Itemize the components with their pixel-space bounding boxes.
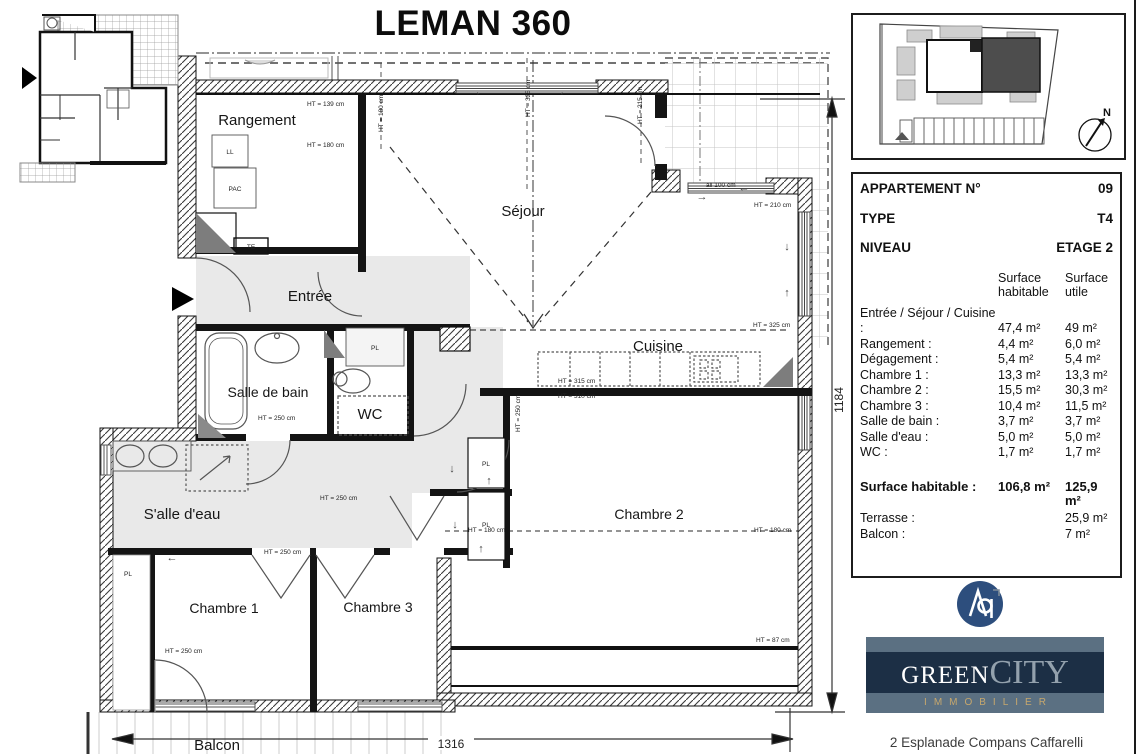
logo-tagline: IMMOBILIER	[866, 693, 1104, 713]
fixture-label: PL	[482, 461, 490, 468]
arrow-glyph: ↓	[784, 241, 790, 253]
surface-total-row: Surface habitable : 106,8 m² 125,9 m²	[860, 480, 1113, 509]
type-row: TYPE T4	[860, 212, 1113, 227]
greencity-logo: GREENCITY IMMOBILIER	[866, 637, 1104, 713]
balcony-floor	[88, 712, 455, 754]
type-label: TYPE	[860, 212, 895, 227]
fixture-label: PL	[482, 522, 490, 529]
compass-north-label: N	[1103, 107, 1111, 119]
level-value: ETAGE 2	[1056, 241, 1113, 256]
logo-green-text: GREEN	[901, 655, 989, 696]
entrance-arrow-icon	[172, 287, 194, 311]
arrow-glyph: →	[697, 191, 708, 203]
apartment-info-panel: APPARTEMENT N° 09 TYPE T4 NIVEAU ETAGE 2…	[851, 172, 1122, 578]
arrow-glyph: →	[471, 86, 482, 98]
plan-sheet: Rangement Séjour Entrée Cuisine Salle de…	[0, 0, 1139, 754]
dim-label: HT = 310 cm	[558, 393, 595, 400]
dim-label: HT = 325 cm	[525, 80, 532, 117]
company-address: 2 Esplanade Compans Caffarelli	[845, 735, 1128, 750]
terrasse-row: Terrasse : 25,9 m²	[860, 511, 1113, 526]
arrow-glyph: ←	[167, 552, 178, 564]
arrow-glyph: ↑	[784, 287, 790, 299]
surface-utile-header: Surface utile	[1065, 271, 1113, 300]
fixture-label: TE	[247, 244, 256, 251]
table-row: Entrée / Séjour / Cuisine : 47,4 m² 49 m…	[860, 306, 1113, 337]
dim-label: HT = 180 cm	[754, 527, 791, 534]
dim-label: HT = 250 cm	[165, 648, 202, 655]
table-row: Chambre 2 : 15,5 m² 30,3 m²	[860, 383, 1113, 399]
highlighted-building	[982, 38, 1040, 92]
logo-city-text: CITY	[990, 652, 1069, 693]
ap-monogram-icon	[956, 580, 1004, 628]
fixture-label: LL	[226, 149, 234, 156]
compass: N	[1079, 107, 1111, 151]
table-row: WC : 1,7 m² 1,7 m²	[860, 445, 1113, 461]
doors	[155, 116, 655, 712]
mini-plan-entrance-arrow-icon	[22, 67, 37, 89]
balcon-row: Balcon : 7 m²	[860, 527, 1113, 542]
apartment-number-label: APPARTEMENT N°	[860, 182, 981, 197]
site-plan-box: N	[851, 13, 1126, 160]
bathroom-sink	[255, 333, 299, 363]
fixture-label: PAC	[229, 186, 242, 193]
dim-label: HT = 315 cm	[558, 378, 595, 385]
fixture-label: PL	[124, 571, 132, 578]
dim-label: HT = 250 cm	[264, 549, 301, 556]
room-label: Balcon	[194, 737, 240, 754]
room-label: Séjour	[501, 203, 544, 220]
dim-label: HT = 325 cm	[753, 322, 790, 329]
room-label: Cuisine	[633, 338, 683, 355]
arrow-glyph: ↓	[449, 463, 455, 475]
dim-label: HT = 215 cm	[637, 87, 644, 124]
sheet-border	[1134, 0, 1136, 754]
room-label: Salle de bain	[228, 384, 309, 400]
surface-column-headers: Surface habitable Surface utile	[860, 271, 1113, 300]
table-row: Rangement : 4,4 m² 6,0 m²	[860, 337, 1113, 353]
page-title: LEMAN 360	[358, 4, 588, 44]
logo-top-band	[866, 637, 1104, 652]
dim-label: HT = 180 cm	[307, 142, 344, 149]
parking-spaces	[900, 118, 1044, 144]
room-label: Rangement	[218, 112, 296, 129]
type-value: T4	[1097, 212, 1113, 227]
dim-label: HT = 250 cm	[258, 415, 295, 422]
table-row: Chambre 1 : 13,3 m² 13,3 m²	[860, 368, 1113, 384]
room-label: Chambre 1	[189, 600, 258, 616]
dim-label: HT = 210 cm	[754, 202, 791, 209]
table-row: Chambre 3 : 10,4 m² 11,5 m²	[860, 399, 1113, 415]
table-row: Dégagement : 5,4 m² 5,4 m²	[860, 352, 1113, 368]
arrow-glyph: ↓	[452, 519, 458, 531]
dim-label: HT = 250 cm	[515, 395, 522, 432]
surface-habitable-header: Surface habitable	[998, 271, 1065, 300]
logo-wordmark: GREENCITY	[866, 652, 1104, 693]
fixture-label: PL	[371, 345, 379, 352]
room-label: WC	[358, 406, 383, 423]
table-row: Salle d'eau : 5,0 m² 5,0 m²	[860, 430, 1113, 446]
room-label: Entrée	[288, 288, 332, 305]
table-row: Salle de bain : 3,7 m² 3,7 m²	[860, 414, 1113, 430]
dim-label: all 100 cm	[706, 182, 736, 189]
arrow-glyph: ↑	[486, 475, 492, 487]
dim-label: HT = 250 cm	[320, 495, 357, 502]
level-row: NIVEAU ETAGE 2	[860, 241, 1113, 256]
mini-plan	[20, 15, 178, 182]
site-plan-map: N	[853, 15, 1124, 158]
arrow-glyph: ←	[559, 86, 570, 98]
dim-label: HT = 87 cm	[756, 637, 790, 644]
room-label: Chambre 3	[343, 599, 412, 615]
room-label: Chambre 2	[614, 506, 683, 522]
overall-width-dim: 1316	[438, 737, 465, 751]
room-label: S'alle d'eau	[144, 506, 221, 523]
apartment-number-value: 09	[1098, 182, 1113, 197]
overall-height-dim: 1184	[832, 387, 846, 413]
bathtub	[205, 333, 247, 429]
dim-label: HT = 139 cm	[307, 101, 344, 108]
level-label: NIVEAU	[860, 241, 911, 256]
pl-closet-ch1	[113, 555, 150, 710]
dim-label: HT = 180 cm	[378, 95, 385, 132]
apartment-number-row: APPARTEMENT N° 09	[860, 182, 1113, 197]
arrow-glyph: ↑	[478, 543, 484, 555]
arrow-glyph: ←	[739, 182, 750, 194]
